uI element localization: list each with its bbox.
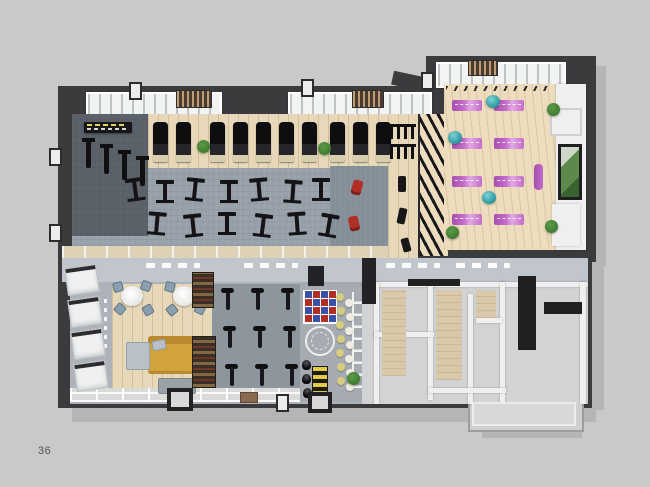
floor-dot — [336, 321, 344, 329]
chair — [165, 303, 179, 317]
spin-bike — [252, 326, 267, 348]
shelf-unit — [64, 264, 100, 296]
plant — [446, 226, 459, 239]
rack — [390, 124, 416, 139]
treadmill — [233, 122, 248, 162]
mat-roll — [534, 164, 543, 190]
spin-bike — [224, 364, 239, 386]
sign-dashes — [456, 263, 510, 268]
bookshelf — [192, 272, 214, 308]
rack — [390, 144, 416, 159]
treadmill — [376, 122, 391, 162]
plant — [197, 140, 210, 153]
machine — [185, 175, 206, 202]
red-mat — [350, 179, 364, 196]
machine — [312, 176, 330, 201]
pilaster — [49, 224, 62, 242]
floor-dot — [346, 341, 354, 349]
document-page: 36 — [0, 0, 650, 487]
yoga-mat — [494, 138, 524, 149]
floor-dot — [336, 349, 344, 357]
pilaster — [49, 148, 62, 166]
pilaster — [301, 79, 314, 97]
kettlebell — [302, 374, 311, 384]
floor-dot — [345, 299, 353, 307]
machine — [253, 211, 274, 238]
floor-dot — [345, 355, 353, 363]
treadmill — [279, 122, 294, 162]
floor-dot — [337, 335, 345, 343]
treadmill — [353, 122, 368, 162]
spin-bike — [220, 288, 235, 310]
machine-upright — [122, 150, 127, 180]
treadmill — [153, 122, 168, 162]
plant — [547, 103, 560, 116]
machine-upright — [140, 156, 145, 186]
shelf-unit — [73, 360, 109, 392]
yoga-mat — [494, 214, 524, 225]
floor-dot — [345, 327, 353, 335]
treadmill — [302, 122, 317, 162]
spin-bike — [254, 364, 269, 386]
sign-dashes — [386, 263, 440, 268]
machine — [183, 211, 204, 238]
floor-dot — [337, 307, 345, 315]
yoga-mat — [452, 176, 482, 187]
pilaster — [276, 394, 289, 412]
sign-dashes — [244, 263, 298, 268]
machine — [147, 209, 167, 235]
kettlebell — [302, 360, 311, 370]
machine — [283, 177, 303, 203]
doormat — [240, 392, 258, 403]
floor-dot — [337, 377, 345, 385]
pilaster — [421, 72, 434, 90]
machine — [220, 178, 238, 203]
spin-bike — [280, 288, 295, 310]
floor-dot — [337, 363, 345, 371]
door — [308, 392, 332, 413]
plant — [318, 142, 331, 155]
spin-bike — [250, 288, 265, 310]
door — [167, 388, 193, 411]
pilaster — [129, 82, 142, 100]
dark-block — [308, 266, 324, 286]
machine-upright — [86, 138, 91, 168]
machine — [218, 210, 236, 235]
sign-dashes — [146, 263, 200, 268]
sign-small — [84, 122, 132, 133]
page-number: 36 — [38, 445, 51, 457]
floor-dot — [346, 313, 354, 321]
dark-block — [362, 258, 376, 304]
machine — [318, 211, 340, 239]
bookshelf — [192, 336, 216, 388]
treadmill — [256, 122, 271, 162]
yoga-mat — [452, 214, 482, 225]
yoga-mat — [494, 176, 524, 187]
spin-bike — [282, 326, 297, 348]
chair — [141, 303, 155, 317]
shelf-unit — [70, 328, 106, 360]
plant — [347, 372, 360, 385]
machine — [287, 209, 307, 235]
bench — [400, 237, 411, 253]
spin-bike — [222, 326, 237, 348]
treadmill — [330, 122, 345, 162]
exercise-ball — [482, 191, 496, 204]
spin-bike — [284, 364, 299, 386]
yoga-mat — [452, 100, 482, 111]
exercise-ball — [486, 95, 500, 108]
plant — [545, 220, 558, 233]
machine — [249, 175, 269, 201]
equipment-layer — [0, 0, 650, 487]
bench — [398, 176, 406, 192]
bench — [396, 207, 407, 224]
red-mat — [348, 215, 361, 232]
treadmill — [210, 122, 225, 162]
floor-dot — [336, 293, 344, 301]
machine — [156, 178, 174, 203]
exercise-ball — [448, 131, 462, 144]
treadmill — [176, 122, 191, 162]
machine-upright — [104, 144, 109, 174]
shelf-unit — [67, 296, 103, 328]
